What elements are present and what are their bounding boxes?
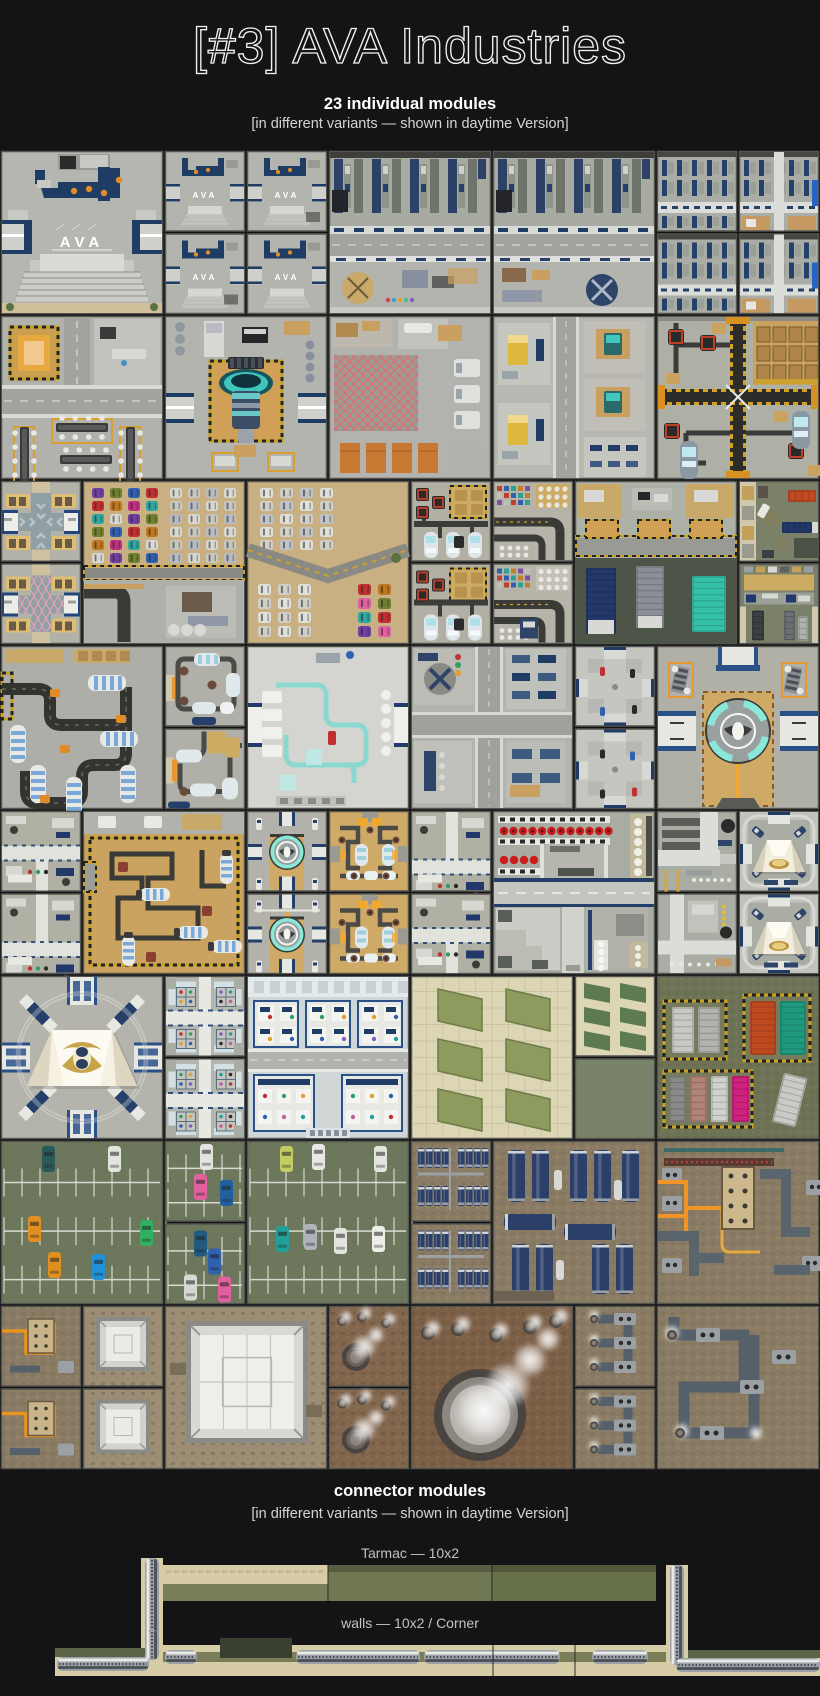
svg-text:AVA: AVA bbox=[193, 273, 218, 282]
svg-text:AVA: AVA bbox=[60, 234, 104, 251]
svg-text:[in different variants — shown: [in different variants — shown in daytim… bbox=[251, 1506, 568, 1522]
svg-text:AVA: AVA bbox=[275, 191, 300, 200]
svg-text:[in different variants — shown: [in different variants — shown in daytim… bbox=[251, 116, 568, 132]
svg-text:23 individual modules: 23 individual modules bbox=[324, 95, 496, 113]
svg-text:walls — 10x2 / Corner: walls — 10x2 / Corner bbox=[340, 1615, 479, 1631]
svg-text:connector modules: connector modules bbox=[334, 1482, 486, 1500]
svg-text:[#3] AVA Industries: [#3] AVA Industries bbox=[193, 18, 627, 74]
svg-text:AVA: AVA bbox=[275, 273, 300, 282]
svg-text:AVA: AVA bbox=[193, 191, 218, 200]
svg-text:Tarmac — 10x2: Tarmac — 10x2 bbox=[361, 1545, 459, 1561]
